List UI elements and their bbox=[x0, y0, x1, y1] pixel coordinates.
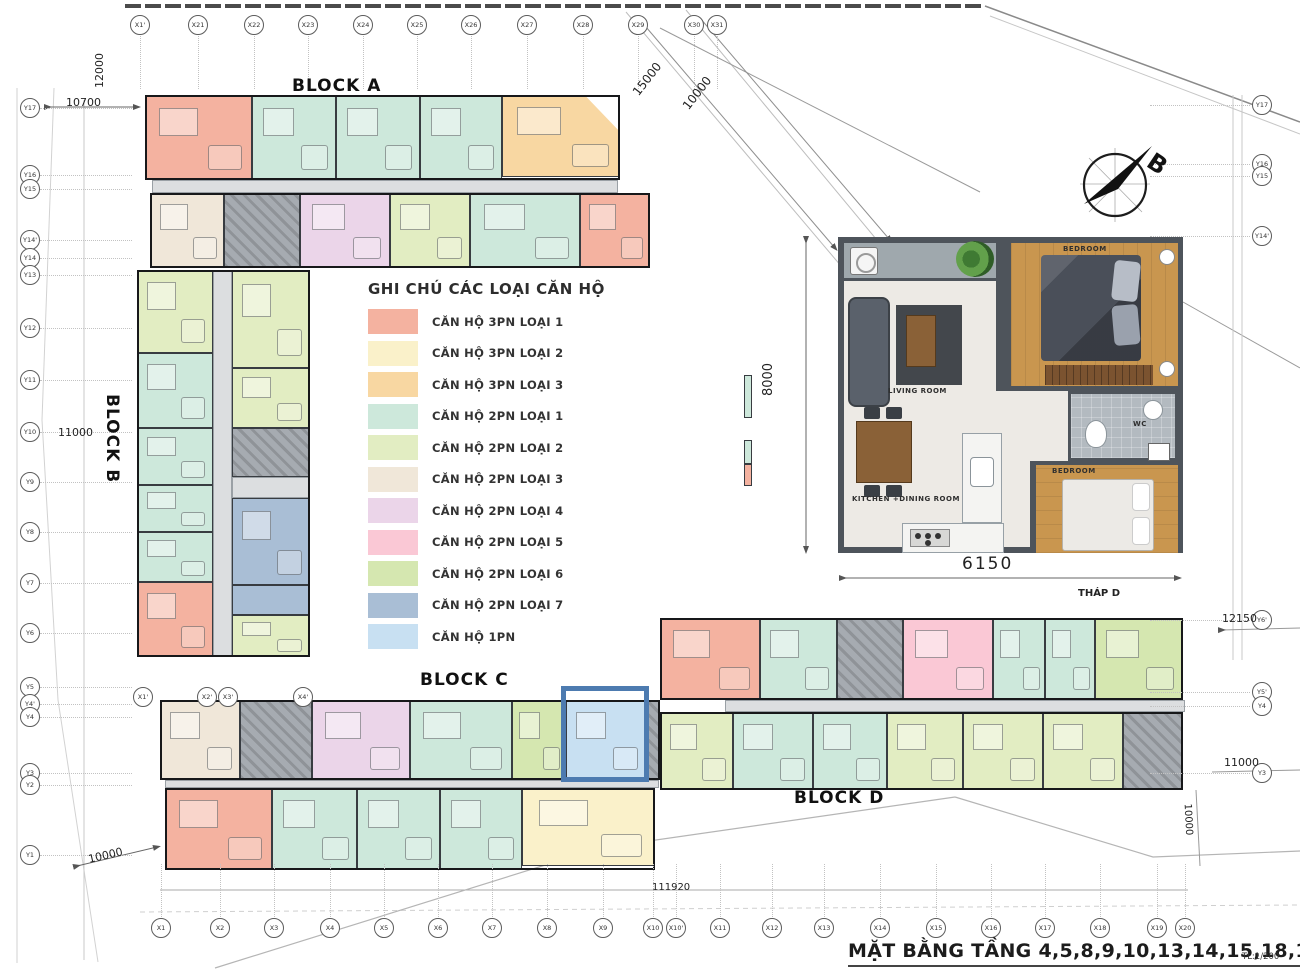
bedroom1-label: BEDROOM bbox=[1063, 245, 1107, 253]
legend-item: CĂN HỘ 3PN LOẠI 1 bbox=[368, 309, 605, 334]
grid-bubble-X22: X22 bbox=[244, 15, 264, 35]
unit-2pn4 bbox=[312, 700, 410, 780]
pillow bbox=[1111, 304, 1140, 346]
grid-leader bbox=[1045, 864, 1046, 919]
grid-bubble-X18: X18 bbox=[1090, 918, 1110, 938]
unit-3pn1 bbox=[744, 464, 752, 486]
grid-leader bbox=[824, 864, 825, 919]
legend-item: CĂN HỘ 2PN LOẠI 7 bbox=[368, 593, 605, 618]
grid-leader bbox=[1100, 864, 1101, 919]
unit-2pn2 bbox=[963, 712, 1043, 790]
grid-leader bbox=[40, 687, 132, 688]
pillow bbox=[1132, 483, 1150, 511]
grid-bubble-X25: X25 bbox=[407, 15, 427, 35]
unit-3pn1 bbox=[137, 582, 213, 657]
legend-item: CĂN HỘ 2PN LOẠI 4 bbox=[368, 498, 605, 523]
unit-2pn1 bbox=[760, 618, 837, 700]
grid-bubble-Y2: Y2 bbox=[20, 775, 40, 795]
scale-label: TL:1/200 bbox=[1242, 952, 1279, 962]
grid-bubble-Y17: Y17 bbox=[20, 98, 40, 118]
grid-leader bbox=[527, 34, 528, 89]
stove bbox=[910, 529, 950, 547]
grid-leader bbox=[330, 864, 331, 919]
dim-12000: 12000 bbox=[93, 53, 106, 88]
side-table bbox=[1159, 249, 1175, 265]
unit-2pn1 bbox=[357, 788, 440, 870]
block-a-label: BLOCK A bbox=[292, 76, 381, 96]
grid-leader bbox=[254, 34, 255, 89]
grid-bubble-X14: X14 bbox=[870, 918, 890, 938]
bedroom-2: BEDROOM bbox=[1036, 461, 1178, 553]
grid-leader bbox=[1150, 692, 1250, 693]
grid-leader bbox=[384, 864, 385, 919]
legend-label: CĂN HỘ 2PN LOẠI 5 bbox=[418, 535, 563, 549]
legend-label: CĂN HỘ 2PN LOẠI 6 bbox=[418, 567, 563, 581]
unit-2pn2 bbox=[887, 712, 963, 790]
unit-2pn1 bbox=[252, 95, 336, 180]
grid-bubble-X9: X9 bbox=[593, 918, 613, 938]
legend-swatch-2pn4 bbox=[368, 498, 418, 523]
dining-table bbox=[856, 421, 912, 483]
bedroom2-label: BEDROOM bbox=[1052, 467, 1096, 475]
unit-corr bbox=[725, 700, 1185, 712]
grid-bubble-Y4: Y4 bbox=[1252, 696, 1272, 716]
unit-2pn1 bbox=[440, 788, 522, 870]
grid-bubble-Y4: Y4 bbox=[20, 707, 40, 727]
grid-leader bbox=[40, 717, 132, 718]
grid-leader bbox=[40, 773, 132, 774]
living-room-label: LIVING ROOM bbox=[888, 387, 947, 395]
grid-bubble-Y1: Y1 bbox=[20, 845, 40, 865]
dim-10700: 10700 bbox=[66, 96, 101, 109]
pillow bbox=[1111, 260, 1141, 302]
unit-2pn1 bbox=[420, 95, 502, 180]
unit-2pn1 bbox=[813, 712, 887, 790]
grid-bubble-X19: X19 bbox=[1147, 918, 1167, 938]
selected-unit-highlight[interactable] bbox=[561, 686, 649, 782]
unit-2pn5 bbox=[903, 618, 993, 700]
grid-leader bbox=[1150, 105, 1250, 106]
legend-swatch-2pn6 bbox=[368, 561, 418, 586]
legend-items: CĂN HỘ 3PN LOẠI 1CĂN HỘ 3PN LOẠI 2CĂN HỘ… bbox=[368, 309, 605, 649]
grid-leader bbox=[274, 864, 275, 919]
grid-leader bbox=[880, 864, 881, 919]
grid-leader bbox=[40, 583, 132, 584]
grid-leader bbox=[40, 633, 132, 634]
grid-leader bbox=[40, 785, 132, 786]
grid-bubble-Y11: Y11 bbox=[20, 370, 40, 390]
page-title: MẶT BẰNG TẦNG 4,5,8,9,10,13,14,15,18,19,… bbox=[848, 940, 1300, 967]
wall bbox=[996, 243, 1004, 391]
unit-2pn1 bbox=[410, 700, 512, 780]
grid-bubble-X3: X3 bbox=[264, 918, 284, 938]
grid-leader bbox=[161, 864, 162, 919]
legend-swatch-2pn3 bbox=[368, 467, 418, 492]
grid-bubble-X2': X2' bbox=[197, 687, 217, 707]
grid-bubble-X23: X23 bbox=[298, 15, 318, 35]
legend: GHI CHÚ CÁC LOẠI CĂN HỘ CĂN HỘ 3PN LOẠI … bbox=[368, 280, 605, 656]
unit-2pn2 bbox=[137, 270, 213, 353]
grid-leader bbox=[1150, 706, 1250, 707]
unit-2pn7 bbox=[232, 585, 310, 615]
dim-10000-right: 10000 bbox=[1182, 803, 1195, 835]
kitchen-label: KITCHEN +DINING ROOM bbox=[852, 495, 960, 503]
unit-3pn2 bbox=[522, 788, 655, 866]
dim-11000-right: 11000 bbox=[1224, 756, 1259, 769]
unit-2pn1 bbox=[336, 95, 420, 180]
grid-leader bbox=[936, 864, 937, 919]
unit-2pn1 bbox=[137, 532, 213, 582]
grid-bubble-X30: X30 bbox=[684, 15, 704, 35]
block-c-label: BLOCK C bbox=[420, 670, 509, 690]
grid-bubble-X4': X4' bbox=[293, 687, 313, 707]
grid-bubble-Y6: Y6 bbox=[20, 623, 40, 643]
unit-2pn2 bbox=[232, 270, 310, 368]
unit-core bbox=[1123, 712, 1183, 790]
grid-bubble-X26: X26 bbox=[461, 15, 481, 35]
grid-bubble-X16: X16 bbox=[981, 918, 1001, 938]
dim-8000: 8000 bbox=[761, 363, 776, 396]
grid-leader bbox=[547, 864, 548, 919]
grid-bubble-X17: X17 bbox=[1035, 918, 1055, 938]
grid-bubble-X4: X4 bbox=[320, 918, 340, 938]
legend-swatch-2pn2 bbox=[368, 435, 418, 460]
dim-111920: 111920 bbox=[652, 882, 690, 893]
grid-leader bbox=[417, 34, 418, 89]
unit-3pn1 bbox=[580, 193, 650, 268]
grid-bubble-Y17: Y17 bbox=[1252, 95, 1272, 115]
unit-2pn6 bbox=[512, 700, 566, 780]
grid-bubble-X1: X1 bbox=[151, 918, 171, 938]
legend-swatch-3pn1 bbox=[368, 309, 418, 334]
legend-swatch-2pn5 bbox=[368, 530, 418, 555]
unit-2pn1 bbox=[744, 375, 752, 418]
grid-bubble-X12: X12 bbox=[762, 918, 782, 938]
unit-2pn1 bbox=[744, 440, 752, 464]
unit-2pn4 bbox=[300, 193, 390, 268]
wc-label: WC bbox=[1133, 420, 1147, 428]
unit-2pn1 bbox=[137, 353, 213, 428]
washer-icon bbox=[850, 247, 878, 275]
grid-bubble-X31: X31 bbox=[707, 15, 727, 35]
grid-leader bbox=[40, 328, 132, 329]
grid-leader bbox=[772, 864, 773, 919]
unit-2pn1 bbox=[137, 485, 213, 532]
north-arrow: B bbox=[1076, 142, 1186, 232]
grid-leader bbox=[198, 34, 199, 89]
legend-swatch-2pn7 bbox=[368, 593, 418, 618]
toilet bbox=[1085, 420, 1107, 448]
unit-2pn1 bbox=[733, 712, 813, 790]
grid-leader bbox=[40, 275, 132, 276]
grid-bubble-X10: X10 bbox=[643, 918, 663, 938]
grid-leader bbox=[991, 864, 992, 919]
grid-bubble-Y7: Y7 bbox=[20, 573, 40, 593]
grid-bubble-X5: X5 bbox=[374, 918, 394, 938]
grid-leader bbox=[40, 189, 132, 190]
coffee-table bbox=[906, 315, 936, 367]
grid-leader bbox=[1150, 773, 1250, 774]
legend-item: CĂN HỘ 2PN LOẠI 1 bbox=[368, 404, 605, 429]
unit-corr bbox=[152, 180, 618, 193]
unit-2pn1 bbox=[993, 618, 1045, 700]
grid-leader bbox=[438, 864, 439, 919]
grid-bubble-X28: X28 bbox=[573, 15, 593, 35]
unit-core bbox=[837, 618, 903, 700]
wardrobe bbox=[1045, 365, 1153, 385]
unit-2pn1 bbox=[470, 193, 580, 268]
legend-item: CĂN HỘ 3PN LOẠI 3 bbox=[368, 372, 605, 397]
legend-swatch-3pn3 bbox=[368, 372, 418, 397]
grid-leader bbox=[40, 175, 132, 176]
grid-leader bbox=[717, 34, 718, 89]
grid-bubble-X21: X21 bbox=[188, 15, 208, 35]
grid-leader bbox=[40, 704, 132, 705]
unit-3pn1 bbox=[660, 618, 760, 700]
sofa bbox=[848, 297, 890, 407]
legend-label: CĂN HỘ 2PN LOẠI 2 bbox=[418, 441, 563, 455]
legend-label: CĂN HỘ 2PN LOẠI 4 bbox=[418, 504, 563, 518]
legend-label: CĂN HỘ 2PN LOẠI 1 bbox=[418, 409, 563, 423]
block-b-label: BLOCK B bbox=[102, 394, 122, 474]
grid-bubble-X15: X15 bbox=[926, 918, 946, 938]
unit-2pn2 bbox=[660, 712, 733, 790]
grid-leader bbox=[492, 864, 493, 919]
grid-leader bbox=[40, 240, 132, 241]
unit-corr bbox=[213, 270, 232, 657]
legend-item: CĂN HỘ 1PN bbox=[368, 624, 605, 649]
legend-swatch-1pn bbox=[368, 624, 418, 649]
wc-sink bbox=[1143, 400, 1163, 420]
legend-item: CĂN HỘ 2PN LOẠI 5 bbox=[368, 530, 605, 555]
grid-bubble-Y10: Y10 bbox=[20, 422, 40, 442]
legend-label: CĂN HỘ 2PN LOẠI 7 bbox=[418, 598, 563, 612]
legend-label: CĂN HỘ 3PN LOẠI 2 bbox=[418, 346, 563, 360]
legend-label: CĂN HỘ 3PN LOẠI 3 bbox=[418, 378, 563, 392]
block-d-label: BLOCK D bbox=[794, 788, 884, 808]
grid-bubble-X3': X3' bbox=[218, 687, 238, 707]
grid-bubble-X8: X8 bbox=[537, 918, 557, 938]
chair bbox=[864, 407, 880, 419]
grid-bubble-Y15: Y15 bbox=[20, 179, 40, 199]
dim-11000-left: 11000 bbox=[58, 426, 93, 439]
grid-bubble-X7: X7 bbox=[482, 918, 502, 938]
grid-bubble-X10': X10' bbox=[666, 918, 686, 938]
legend-swatch-3pn2 bbox=[368, 341, 418, 366]
grid-leader bbox=[1157, 864, 1158, 919]
grid-bubble-Y13: Y13 bbox=[20, 265, 40, 285]
tower-label: THÁP D bbox=[1078, 588, 1120, 599]
unit-2pn2 bbox=[232, 615, 310, 657]
unit-2pn1 bbox=[272, 788, 357, 870]
legend-title: GHI CHÚ CÁC LOẠI CĂN HỘ bbox=[368, 280, 605, 298]
unit-2pn2 bbox=[1043, 712, 1123, 790]
grid-bubble-X20: X20 bbox=[1175, 918, 1195, 938]
grid-leader bbox=[583, 34, 584, 89]
chair bbox=[886, 407, 902, 419]
legend-item: CĂN HỘ 3PN LOẠI 2 bbox=[368, 341, 605, 366]
grid-bubble-X1': X1' bbox=[133, 687, 153, 707]
grid-bubble-Y15: Y15 bbox=[1252, 166, 1272, 186]
unit-2pn1 bbox=[137, 428, 213, 485]
grid-bubble-X2: X2 bbox=[210, 918, 230, 938]
grid-leader bbox=[220, 864, 221, 919]
bedroom-1: BEDROOM bbox=[1004, 243, 1178, 391]
grid-bubble-Y14': Y14' bbox=[1252, 226, 1272, 246]
pillow bbox=[1132, 517, 1150, 545]
grid-bubble-X1': X1' bbox=[130, 15, 150, 35]
grid-leader bbox=[40, 532, 132, 533]
unit-2pn2 bbox=[390, 193, 470, 268]
unit-2pn7 bbox=[232, 498, 310, 585]
grid-leader bbox=[471, 34, 472, 89]
grid-leader bbox=[603, 864, 604, 919]
closet bbox=[1148, 443, 1170, 461]
grid-bubble-X6: X6 bbox=[428, 918, 448, 938]
grid-bubble-Y9: Y9 bbox=[20, 472, 40, 492]
grid-bubble-Y8: Y8 bbox=[20, 522, 40, 542]
grid-leader bbox=[140, 34, 141, 89]
unit-2pn3 bbox=[160, 700, 240, 780]
grid-bubble-Y14': Y14' bbox=[20, 230, 40, 250]
legend-label: CĂN HỘ 3PN LOẠI 1 bbox=[418, 315, 563, 329]
unit-corr bbox=[232, 477, 310, 498]
unit-2pn3 bbox=[150, 193, 224, 268]
grid-leader bbox=[1185, 864, 1186, 919]
grid-leader bbox=[720, 864, 721, 919]
grid-bubble-Y12: Y12 bbox=[20, 318, 40, 338]
unit-2pn1 bbox=[1045, 618, 1095, 700]
unit-2pn2 bbox=[232, 368, 310, 428]
grid-bubble-X29: X29 bbox=[628, 15, 648, 35]
legend-item: CĂN HỘ 2PN LOẠI 6 bbox=[368, 561, 605, 586]
grid-leader bbox=[40, 380, 132, 381]
unit-detail-plan: LIVING ROOM KITCHEN +DINING ROOM BEDROOM… bbox=[838, 237, 1183, 553]
grid-leader bbox=[694, 34, 695, 89]
grid-bubble-X13: X13 bbox=[814, 918, 834, 938]
unit-core bbox=[224, 193, 300, 268]
legend-item: CĂN HỘ 2PN LOẠI 2 bbox=[368, 435, 605, 460]
dim-12150: 12150 bbox=[1222, 612, 1257, 625]
plant-icon bbox=[956, 241, 994, 277]
legend-label: CĂN HỘ 1PN bbox=[418, 630, 515, 644]
grid-bubble-X27: X27 bbox=[517, 15, 537, 35]
unit-core bbox=[232, 428, 310, 477]
kitchen-sink bbox=[970, 457, 994, 487]
unit-3pn1 bbox=[165, 788, 272, 870]
legend-item: CĂN HỘ 2PN LOẠI 3 bbox=[368, 467, 605, 492]
side-table bbox=[1159, 361, 1175, 377]
grid-bubble-X11: X11 bbox=[710, 918, 730, 938]
unit-2pn6 bbox=[1095, 618, 1183, 700]
floor-plan-canvas: BLOCK A BLOCK B BLOCK C BLOCK D 12000 10… bbox=[0, 0, 1300, 975]
grid-bubble-X24: X24 bbox=[353, 15, 373, 35]
legend-label: CĂN HỘ 2PN LOẠI 3 bbox=[418, 472, 563, 486]
legend-swatch-2pn1 bbox=[368, 404, 418, 429]
unit-3pn1 bbox=[145, 95, 252, 180]
unit-core bbox=[240, 700, 312, 780]
dim-6150: 6150 bbox=[962, 554, 1013, 574]
grid-leader bbox=[40, 258, 132, 259]
